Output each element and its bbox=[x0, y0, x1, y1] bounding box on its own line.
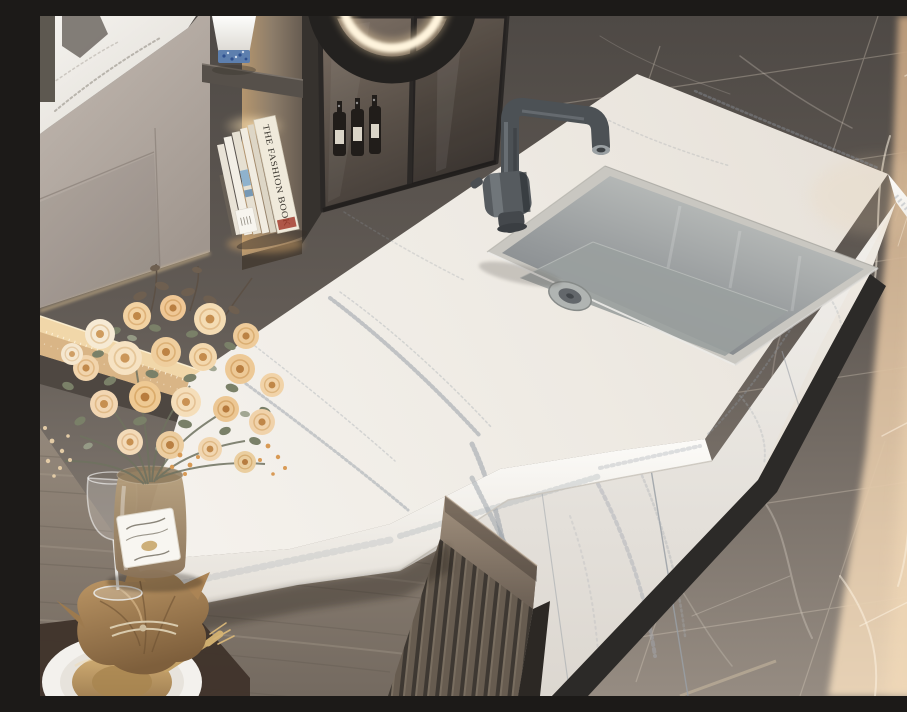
vase-label bbox=[116, 508, 180, 568]
kitchen-photo: THE FASHION BOOK bbox=[40, 16, 907, 696]
wine-bottles bbox=[333, 95, 381, 156]
mirror-edge bbox=[40, 16, 55, 102]
